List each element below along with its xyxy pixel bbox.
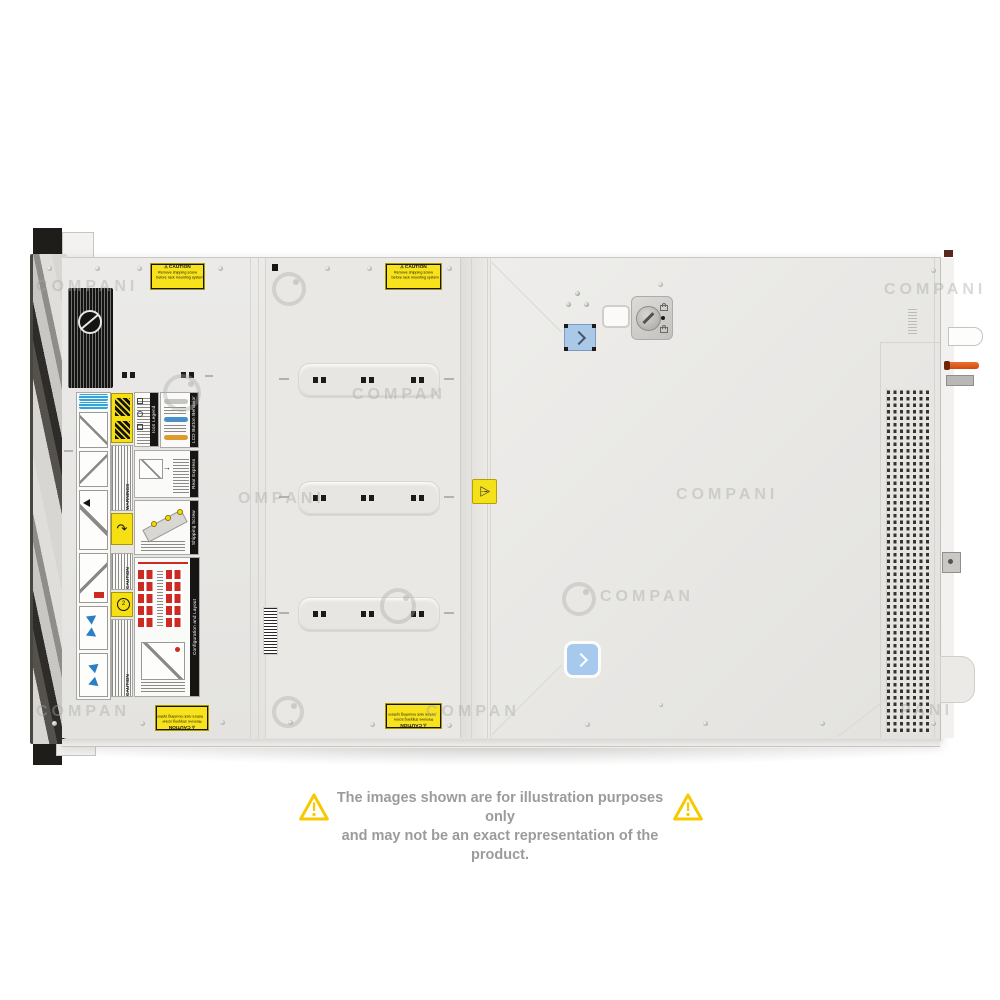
product-photo-stage: CAUTION Remove shipping screw before rac… [0,0,1000,1000]
legend-icon [137,411,143,417]
release-lever-orange [946,362,979,369]
chevron-right-icon [572,331,586,345]
cover-release-latch [564,324,596,351]
blue-tag [79,402,108,409]
screw [931,721,936,726]
blue-arrow-icon [86,627,99,640]
service-tag-diagram [139,459,163,479]
watermark-text: COMPAN [600,588,694,606]
watermark-logo-icon [380,588,416,624]
caption-lines [164,424,186,432]
release-button [567,644,598,675]
screw [220,720,225,725]
caution-sticker: CAUTION Remove shipping screw before rac… [150,263,205,290]
watermark-logo-icon [163,374,201,412]
drive-bay-grid [138,569,155,627]
lcd-bar-orange [164,435,188,440]
configuration-layout-label: Configuration and Layout [134,557,200,697]
rear-tab [940,656,975,703]
watermark-text: PANI [900,702,953,720]
rivet [566,302,571,307]
panel-seam [934,258,935,738]
panel-dash [444,612,454,614]
screw [52,721,57,726]
rear-bracket [946,375,974,386]
caution-sticker: CAUTION Remove shipping screw before rac… [155,705,209,731]
watermark-text: COMPAN [36,703,130,721]
screw [370,722,375,727]
screw [218,266,223,271]
shipping-screw-label: Shipping Screw Removal [134,500,199,555]
watermark-logo-icon [272,272,306,306]
disclaimer-text: The images shown are for illustration pu… [320,789,680,865]
panel-dash [279,612,289,614]
watermark-text: COMPANI [36,278,138,296]
screw [659,703,663,707]
arrow-icon [83,499,90,507]
timer-icon: 2 [117,598,130,611]
drive-bay-grid [166,569,183,627]
blue-arrow-icon [87,677,99,689]
warning-sticker-small: ⚠ [472,479,497,504]
disclaimer-line1: The images shown are for illustration pu… [320,789,680,827]
red-dot [175,647,180,652]
watermark-text: COMPAN [352,386,446,404]
regulatory-label [68,288,113,388]
blue-arrow-icon [86,611,99,624]
lever-cap [944,361,950,370]
panel-dash [205,375,213,377]
vent-perforation-grid [886,388,929,732]
instruction-diagram [79,553,108,603]
rivet [575,291,580,296]
legend-icon [137,398,143,404]
caption-lines [157,570,163,626]
caution-title: CAUTION [126,556,131,589]
screw-highlight [177,509,183,515]
lock-closed-icon [660,305,668,311]
cover-keylock [631,296,673,340]
instruction-diagram [79,490,108,550]
red-callout [94,592,104,598]
screw [703,721,708,726]
chassis-diagram [141,642,185,680]
rear-tag-title: Rear Express Service Tag [190,451,198,497]
panel-seam [880,342,881,738]
screw [137,266,142,271]
lock-open-icon [660,327,668,333]
rotate-arrow-icon: ↷ [117,521,128,536]
screw [140,721,145,726]
shipping-screw [944,250,953,257]
vent-slot-pair [122,372,135,378]
screw [447,723,452,728]
rack-ear-top-left [33,228,62,257]
watermark-text: OMPANI [238,490,325,508]
rear-connector [942,552,961,573]
rear-service-tag-label: → Rear Express Service Tag [134,450,199,498]
rotate-hazard-sticker: ↷ [111,513,133,545]
caution-label: CAUTION [111,553,133,590]
rear-handle [948,327,983,346]
chassis-bottom-skirt [62,739,940,747]
caption-lines [141,682,185,692]
watermark-text: COMPAN [426,703,520,721]
screw [367,266,372,271]
legend-icon [137,424,143,430]
blue-arrow-icon [87,661,99,673]
icon-legend-label: Icon Legend [134,392,159,447]
caption-lines [141,541,185,551]
drop-shadow [40,748,960,766]
chevron-right-icon [574,653,588,667]
disclaimer-line2: and may not be an exact representation o… [320,827,680,865]
hazard-icon [115,421,130,439]
caution-title: CAUTION [161,724,203,730]
keylock-dial [636,306,661,331]
shipping-screw-title: Shipping Screw Removal [190,501,198,554]
instruction-diagram [79,606,108,650]
caution-label: CAUTION [111,619,133,697]
lid-handle-recess [298,597,440,632]
panel-dash [279,378,289,380]
pinch-hazard-sticker [111,393,133,443]
screw [325,266,330,271]
vent-slot [272,264,278,271]
warning-triangle-icon: ⚠ [478,486,491,498]
caution-sticker: CAUTION Remove shipping screw before rac… [385,263,442,290]
panel-dash [444,496,454,498]
caution-title: CAUTION [126,622,131,696]
instruction-diagram [79,412,108,448]
screw [95,266,100,271]
screw [447,266,452,271]
barcode-sticker [263,607,278,655]
watermark-text: COMPANI [884,281,986,299]
watermark-logo-icon [562,582,596,616]
engraved-text [908,308,917,334]
lcd-bar-blue [164,417,188,422]
rivet [584,302,589,307]
shipping-bracket-top-left [62,232,94,258]
red-caption [138,562,188,564]
latch-slider [602,305,630,328]
screw-highlight [151,521,157,527]
warnings-label: WARNINGS [111,445,133,511]
hazard-icon [115,398,130,416]
instruction-diagram [79,653,108,697]
caption-lines [173,457,189,493]
indicator-dot [661,316,665,320]
screw [931,268,936,273]
arrow-icon: → [163,463,171,472]
warnings-title: WARNINGS [126,448,131,510]
watermark-logo-icon [272,696,304,728]
timer-sticker: 2 [111,592,133,617]
screw [658,282,663,287]
icon-legend-title: Icon Legend [150,393,158,446]
watermark-text: COMPANI [676,486,778,504]
screw [47,266,52,271]
caution-title: CAUTION [392,722,436,728]
rail-instruction-label [76,392,111,700]
warning-triangle-icon [672,792,704,822]
certification-mark-icon [78,310,102,334]
panel-dash [64,450,73,452]
instruction-diagram [79,451,108,487]
screw [585,722,590,727]
panel-dash [444,378,454,380]
config-layout-title: Configuration and Layout [190,558,199,696]
blue-tag [79,394,108,401]
panel-seam [880,342,940,343]
screw-highlight [165,515,171,521]
screw [820,721,825,726]
